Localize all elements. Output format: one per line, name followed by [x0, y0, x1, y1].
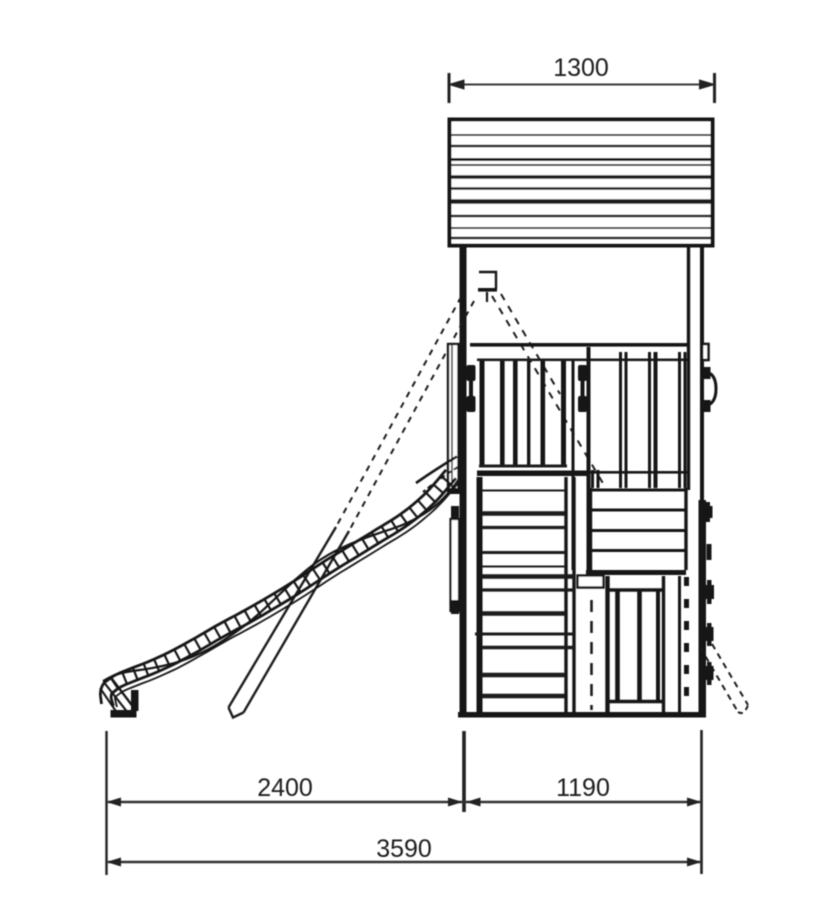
svg-text:1300: 1300 [553, 54, 609, 82]
svg-text:2400: 2400 [257, 774, 313, 802]
svg-text:3590: 3590 [376, 835, 432, 863]
svg-text:1190: 1190 [556, 774, 610, 802]
